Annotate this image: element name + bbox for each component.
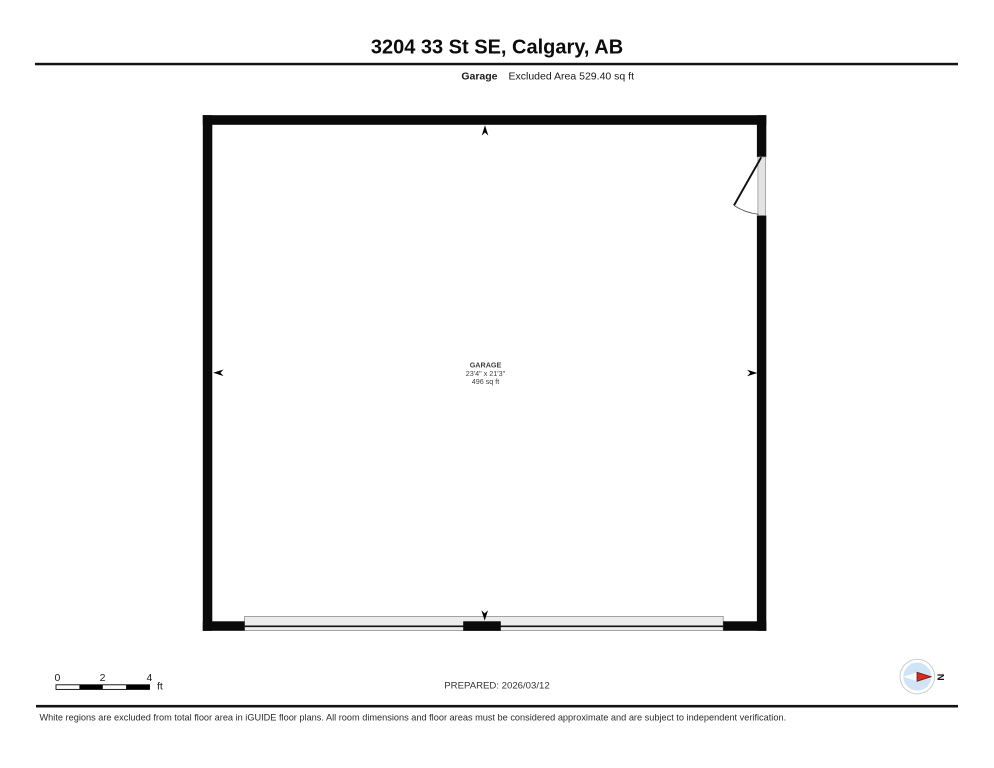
svg-text:3204 33 St SE, Calgary, AB: 3204 33 St SE, Calgary, AB [371,37,623,59]
svg-text:N: N [934,674,945,681]
svg-text:Garage: Garage [461,70,497,82]
svg-text:2: 2 [100,672,106,684]
svg-text:White regions are excluded fro: White regions are excluded from total fl… [40,713,787,723]
svg-text:496 sq ft: 496 sq ft [472,377,500,386]
svg-text:0: 0 [54,672,60,684]
svg-text:ft: ft [157,681,163,693]
svg-text:Excluded Area 529.40 sq ft: Excluded Area 529.40 sq ft [509,70,635,82]
svg-text:4: 4 [146,672,152,684]
svg-text:PREPARED: 2026/03/12: PREPARED: 2026/03/12 [444,680,549,691]
